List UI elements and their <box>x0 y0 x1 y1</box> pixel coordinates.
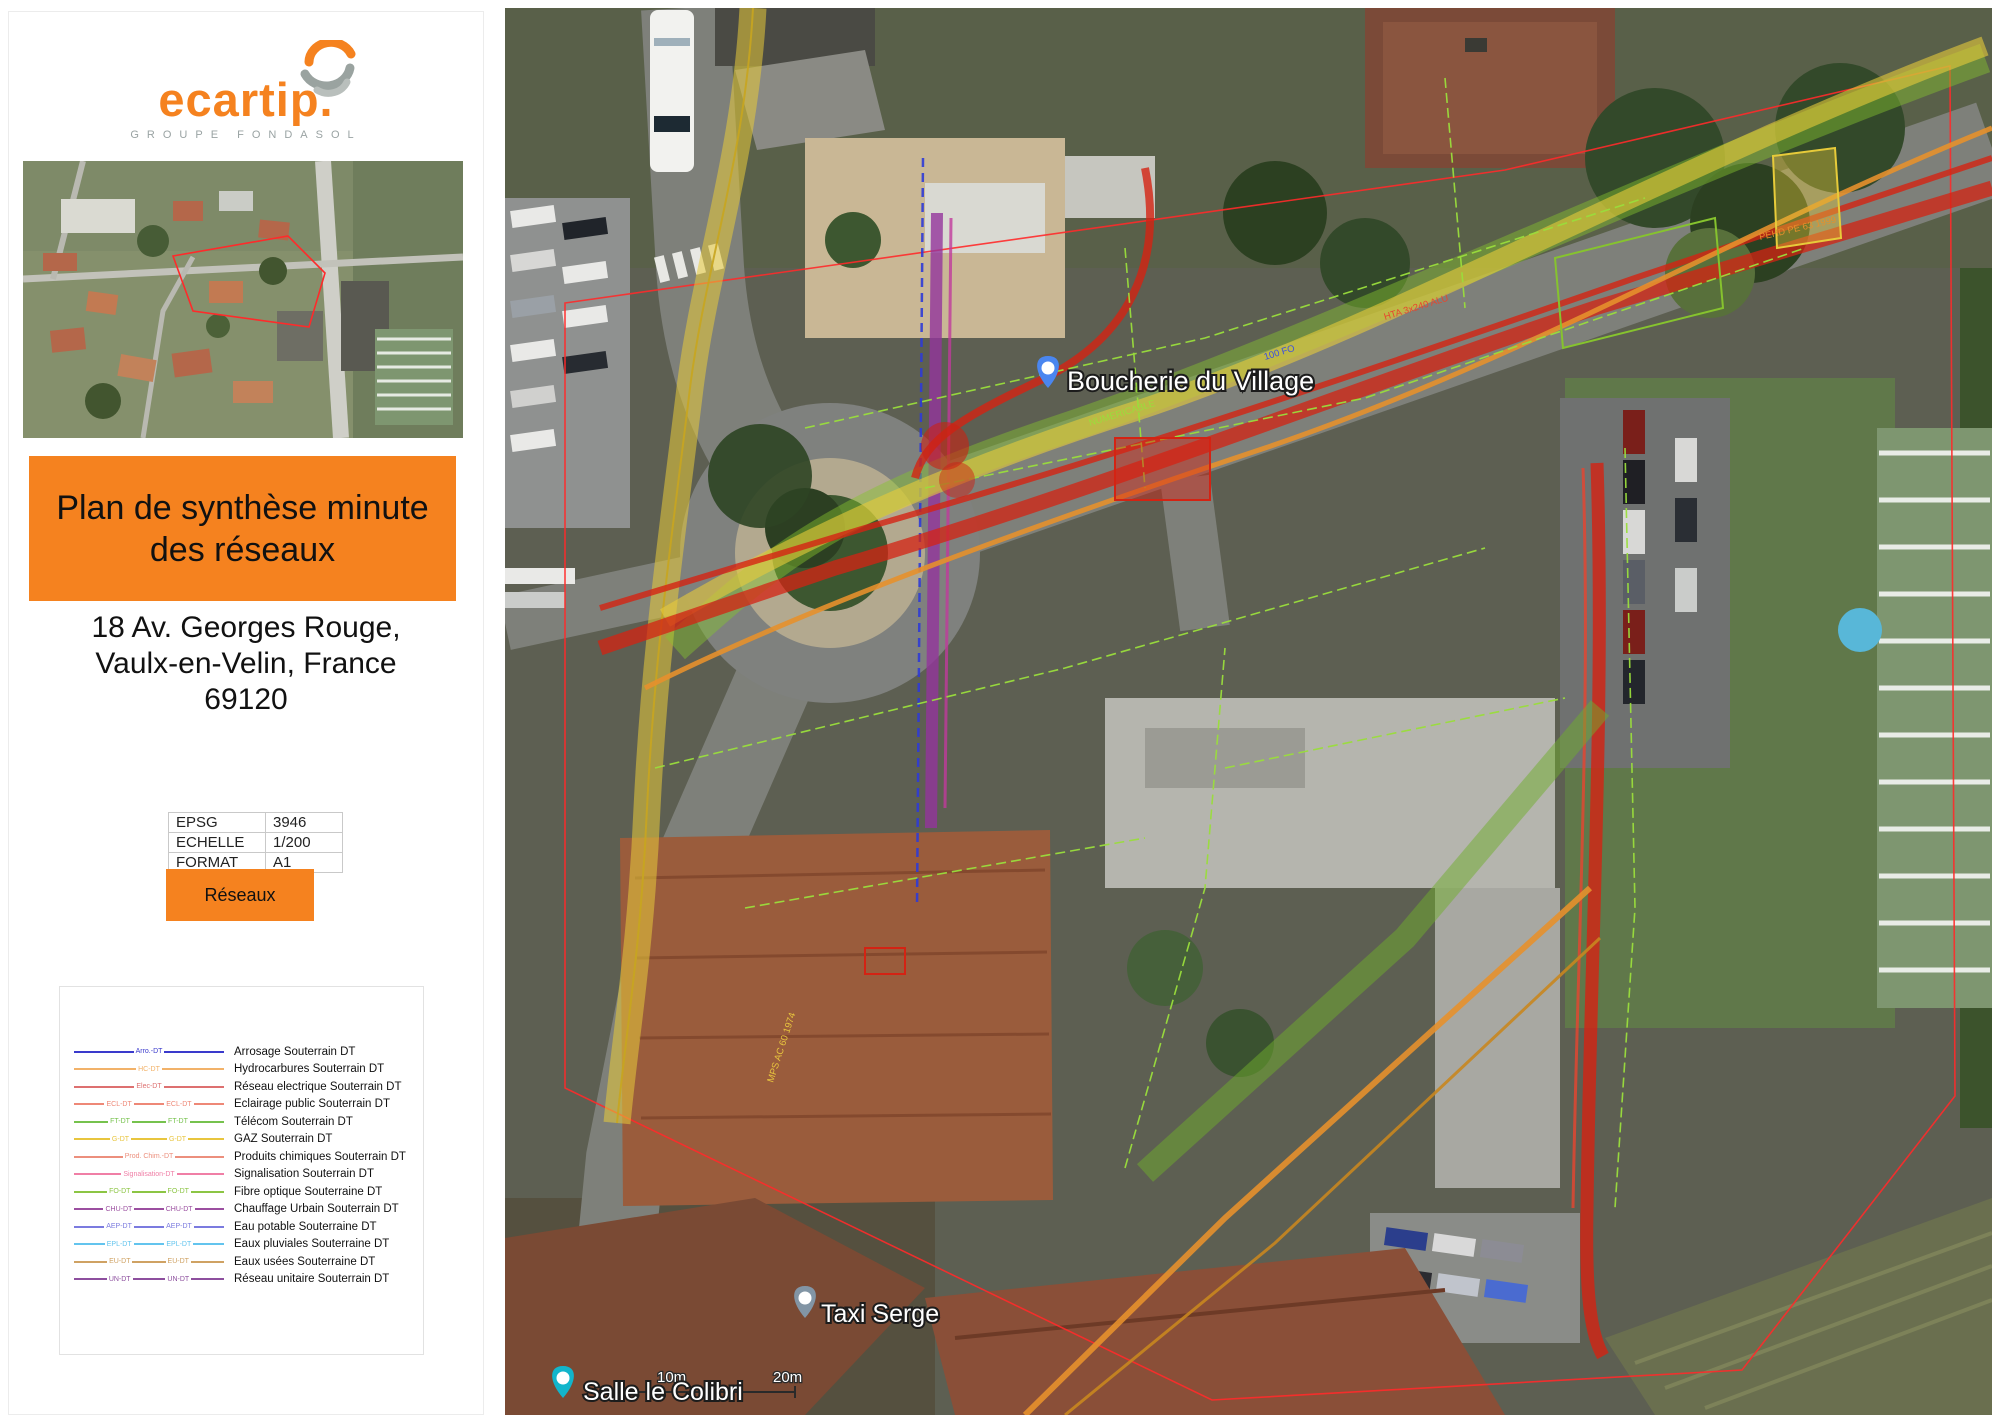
info-key: ECHELLE <box>169 833 266 853</box>
legend-label: Chauffage Urbain Souterrain DT <box>234 1203 399 1215</box>
legend-line <box>74 1173 121 1175</box>
logo-text: ecartip. <box>9 72 483 127</box>
legend-line <box>195 1208 224 1210</box>
legend-code: EU-DT <box>107 1258 132 1265</box>
network-legend: Arro.-DTArrosage Souterrain DTHC-DTHydro… <box>59 986 424 1355</box>
legend-line <box>74 1226 104 1228</box>
legend-code: HC-DT <box>136 1066 162 1073</box>
plan-title-banner: Plan de synthèse minute des réseaux <box>29 456 456 601</box>
legend-line-sample: EPL-DTEPL-DT <box>74 1241 224 1248</box>
bus <box>650 10 694 172</box>
center-building <box>1105 698 1555 888</box>
legend-line <box>134 1103 164 1105</box>
legend-row: G-DTG-DTGAZ Souterrain DT <box>74 1131 423 1149</box>
legend-line <box>164 1051 224 1053</box>
legend-line <box>190 1121 224 1123</box>
legend-label: Télécom Souterrain DT <box>234 1116 353 1128</box>
legend-line-sample: FO-DTFO-DT <box>74 1188 224 1195</box>
legend-code: FT-DT <box>108 1118 132 1125</box>
legend-label: GAZ Souterrain DT <box>234 1133 332 1145</box>
overview-thumbnail <box>23 161 463 438</box>
legend-line-sample: Elec-DT <box>74 1083 224 1090</box>
legend-code: EU-DT <box>166 1258 191 1265</box>
legend-line <box>194 1103 224 1105</box>
legend-row: FO-DTFO-DTFibre optique Souterraine DT <box>74 1183 423 1201</box>
logo-subtitle: GROUPE FONDASOL <box>9 129 483 141</box>
legend-row: CHU-DTCHU-DTChauffage Urbain Souterrain … <box>74 1201 423 1219</box>
legend-line <box>134 1243 165 1245</box>
legend-line <box>74 1261 107 1263</box>
legend-line-sample: Prod. Chim.-DT <box>74 1153 224 1160</box>
address-line3: 69120 <box>9 682 483 718</box>
legend-line <box>74 1208 103 1210</box>
legend-line-sample: Signalisation-DT <box>74 1171 224 1178</box>
satellite-map[interactable]: NUMERICABLEHTA 3x240 ALUMPS AC 60 1974PE… <box>505 8 1992 1415</box>
legend-line-sample: ECL-DTECL-DT <box>74 1101 224 1108</box>
legend-line-sample: FT-DTFT-DT <box>74 1118 224 1125</box>
legend-line <box>134 1208 163 1210</box>
legend-line <box>131 1138 167 1140</box>
legend-code: Signalisation-DT <box>121 1171 176 1178</box>
legend-line <box>74 1191 107 1193</box>
legend-row: EPL-DTEPL-DTEaux pluviales Souterraine D… <box>74 1236 423 1254</box>
legend-code: EPL-DT <box>164 1241 193 1248</box>
legend-label: Arrosage Souterrain DT <box>234 1046 355 1058</box>
legend-label: Fibre optique Souterraine DT <box>234 1186 382 1198</box>
pool <box>1838 608 1882 652</box>
pin-glyph <box>557 1372 570 1385</box>
legend-label: Réseau unitaire Souterrain DT <box>234 1273 389 1285</box>
legend-code: Prod. Chim.-DT <box>123 1153 176 1160</box>
poi-label-text: Salle le Colibri <box>583 1378 743 1406</box>
scale-20m: 20m <box>773 1369 802 1386</box>
legend-code: ECL-DT <box>104 1101 133 1108</box>
info-value: 3946 <box>266 813 343 833</box>
info-row: ECHELLE1/200 <box>169 833 343 853</box>
plan-info-table: EPSG3946ECHELLE1/200FORMATA1 <box>168 812 343 873</box>
address-line2: Vaulx-en-Velin, France <box>9 646 483 682</box>
legend-line <box>74 1138 110 1140</box>
legend-code: FO-DT <box>107 1188 132 1195</box>
legend-row: UN-DTUN-DTRéseau unitaire Souterrain DT <box>74 1271 423 1289</box>
legend-code: FO-DT <box>166 1188 191 1195</box>
legend-label: Produits chimiques Souterrain DT <box>234 1151 406 1163</box>
site-address: 18 Av. Georges Rouge, Vaulx-en-Velin, Fr… <box>9 610 483 718</box>
legend-line <box>191 1191 224 1193</box>
legend-label: Eau potable Souterraine DT <box>234 1221 377 1233</box>
legend-code: FT-DT <box>166 1118 190 1125</box>
legend-line <box>132 1121 166 1123</box>
legend-code: Arro.-DT <box>134 1048 165 1055</box>
legend-line <box>74 1278 107 1280</box>
legend-row: Arro.-DTArrosage Souterrain DT <box>74 1043 423 1061</box>
plan-title-line1: Plan de synthèse minute <box>56 487 428 529</box>
plan-title-line2: des réseaux <box>150 529 335 571</box>
greenhouses <box>1877 428 1992 1008</box>
legend-line-sample: G-DTG-DT <box>74 1136 224 1143</box>
legend-line <box>74 1121 108 1123</box>
globe-icon <box>295 40 359 100</box>
legend-line <box>193 1243 224 1245</box>
legend-label: Eclairage public Souterrain DT <box>234 1098 390 1110</box>
info-row: EPSG3946 <box>169 813 343 833</box>
legend-line <box>194 1226 224 1228</box>
legend-row: EU-DTEU-DTEaux usées Souterraine DT <box>74 1253 423 1271</box>
legend-line-sample: HC-DT <box>74 1066 224 1073</box>
legend-line <box>134 1226 164 1228</box>
legend-line-sample: AEP-DTAEP-DT <box>74 1223 224 1230</box>
legend-label: Réseau electrique Souterrain DT <box>234 1081 401 1093</box>
info-value: 1/200 <box>266 833 343 853</box>
legend-row: ECL-DTECL-DTEclairage public Souterrain … <box>74 1096 423 1114</box>
info-key: EPSG <box>169 813 266 833</box>
legend-line <box>162 1068 224 1070</box>
legend-code: CHU-DT <box>164 1206 195 1213</box>
legend-line <box>191 1261 224 1263</box>
address-line1: 18 Av. Georges Rouge, <box>9 610 483 646</box>
legend-line-sample: Arro.-DT <box>74 1048 224 1055</box>
legend-row: Elec-DTRéseau electrique Souterrain DT <box>74 1078 423 1096</box>
legend-line <box>188 1138 224 1140</box>
legend-label: Eaux pluviales Souterraine DT <box>234 1238 389 1250</box>
legend-label: Eaux usées Souterraine DT <box>234 1256 375 1268</box>
legend-code: G-DT <box>110 1136 131 1143</box>
legend-code: AEP-DT <box>164 1223 194 1230</box>
legend-line <box>164 1086 224 1088</box>
legend-line <box>177 1173 224 1175</box>
legend-line <box>74 1086 134 1088</box>
legend-line <box>74 1068 136 1070</box>
legend-line-sample: CHU-DTCHU-DT <box>74 1206 224 1213</box>
legend-line <box>74 1243 105 1245</box>
legend-line-sample: UN-DTUN-DT <box>74 1276 224 1283</box>
ecartip-logo: ecartip. GROUPE FONDASOL <box>9 38 483 141</box>
legend-code: AEP-DT <box>104 1223 134 1230</box>
legend-row: AEP-DTAEP-DTEau potable Souterraine DT <box>74 1218 423 1236</box>
legend-line <box>175 1156 224 1158</box>
terracotta-roof-building <box>620 830 1053 1206</box>
legend-code: G-DT <box>167 1136 188 1143</box>
legend-code: UN-DT <box>165 1276 191 1283</box>
legend-row: FT-DTFT-DTTélécom Souterrain DT <box>74 1113 423 1131</box>
legend-code: CHU-DT <box>103 1206 134 1213</box>
legend-row: Prod. Chim.-DTProduits chimiques Souterr… <box>74 1148 423 1166</box>
legend-line <box>74 1156 123 1158</box>
legend-label: Signalisation Souterrain DT <box>234 1168 374 1180</box>
legend-line <box>191 1278 224 1280</box>
legend-code: Elec-DT <box>134 1083 163 1090</box>
pin-glyph <box>1042 362 1055 375</box>
poi-label-text: Boucherie du Village <box>1067 366 1314 396</box>
legend-code: EPL-DT <box>105 1241 134 1248</box>
legend-line <box>74 1103 104 1105</box>
pin-glyph <box>799 1292 812 1305</box>
legend-line <box>132 1191 165 1193</box>
legend-row: HC-DTHydrocarbures Souterrain DT <box>74 1061 423 1079</box>
legend-line-sample: EU-DTEU-DT <box>74 1258 224 1265</box>
poi-label-text: Taxi Serge <box>821 1300 939 1328</box>
legend-line <box>74 1051 134 1053</box>
legend-label: Hydrocarbures Souterrain DT <box>234 1063 384 1075</box>
legend-line <box>132 1261 165 1263</box>
legend-code: ECL-DT <box>164 1101 193 1108</box>
info-panel: ecartip. GROUPE FONDASOL <box>8 11 484 1415</box>
legend-line <box>133 1278 166 1280</box>
legend-row: Signalisation-DTSignalisation Souterrain… <box>74 1166 423 1184</box>
reseaux-button[interactable]: Réseaux <box>166 869 314 921</box>
legend-code: UN-DT <box>107 1276 133 1283</box>
